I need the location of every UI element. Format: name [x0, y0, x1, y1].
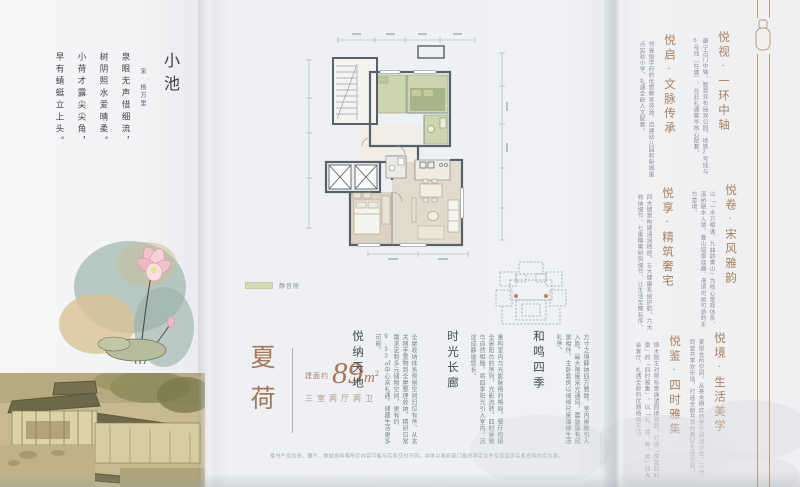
highlight-body: 邻省级学府的优质教育资源，自建幼儿园和新城重点实验小学，礼遇全龄人文配套。 — [636, 41, 654, 179]
highlight-body: 以「一水万相逢，九曲韵青山」为核心景观体系，溪桥融水入境，叠山错景成趣，漫境可居… — [688, 191, 715, 329]
faint-wash-art — [470, 380, 610, 480]
gourd-motif — [751, 18, 775, 54]
lotus-painting — [52, 232, 207, 382]
bottom-edge-shadow — [0, 473, 800, 487]
plan-legend: 静音舱 — [245, 281, 300, 290]
highlight-block: 悦视·一环中轴 康宁古门中轴，智慧双布局双公园，地铁2号线与5号线（在建），在此… — [690, 31, 731, 176]
highlight-body: 四大镜景构建浸润栖居，五大健康系统护航，六大收纳细节，七重精奢研筑细节，让生活至… — [634, 194, 652, 332]
faint-landscape-art — [600, 360, 800, 487]
shaft — [418, 46, 444, 58]
gold-border-line — [769, 0, 770, 487]
area-prefix: 建面约 — [305, 371, 329, 381]
gold-border-line — [757, 0, 758, 487]
floor-plan — [300, 28, 510, 263]
highlight-title: 悦启·文脉传承 — [661, 34, 677, 149]
poem-title: 小池 — [157, 52, 181, 98]
pavilion-painting — [0, 373, 205, 487]
poem-line: 早有蜻蜓立上头。 — [54, 52, 66, 148]
feature-title: 时光长廊 — [444, 330, 460, 400]
feature-title: 悦纳天地 — [349, 330, 365, 400]
highlight-block: 悦启·文脉传承 邻省级学府的优质教育资源，自建幼儿园和新城重点实验小学，礼遇全龄… — [636, 34, 677, 179]
divider-line — [292, 348, 293, 433]
feature-block: 悦纳天地 全屋收纳体系预留空间归位有序，从玄关随手置物到全屋整理收纳，精研日常需… — [349, 330, 417, 446]
highlight-title: 悦视·一环中轴 — [715, 31, 731, 146]
legend-green-swatch — [245, 282, 273, 289]
elevators — [329, 165, 377, 189]
highlight-title: 悦卷·宋风雅韵 — [722, 184, 738, 299]
poem-block: 小池 宋·杨万里 泉眼无声惜细流， 树阴照水爱晴柔。 小荷才露尖尖角， 早有蜻蜓… — [50, 52, 181, 177]
bathroom — [386, 156, 406, 178]
legend-label: 静音舱 — [279, 281, 300, 290]
highlight-body: 康宁古门中轴，智慧双布局双公园，地铁2号线与5号线（在建），在此礼遇繁华核心配套… — [690, 38, 708, 176]
highlight-block: 悦享·精筑奢宅 四大镜景构建浸润栖居，五大健康系统护航，六大收纳细节，七重精奢研… — [634, 187, 675, 332]
highlight-block: 悦卷·宋风雅韵 以「一水万相逢，九曲韵青山」为核心景观体系，溪桥融水入境，叠山错… — [688, 184, 738, 329]
highlight-title: 悦享·精筑奢宅 — [659, 187, 675, 302]
poem-line: 树阴照水爱晴柔。 — [98, 52, 110, 148]
poem-line: 泉眼无声惜细流， — [120, 52, 132, 148]
key-plan — [492, 256, 570, 336]
unit-name: 夏荷 — [242, 344, 278, 439]
poem-line: 小荷才露尖尖角， — [76, 52, 88, 148]
kitchen — [415, 160, 450, 180]
feature-body: 全屋收纳体系预留空间归位有序，从玄关随手置物到全屋整理收纳，精研日常需求定制多元… — [372, 334, 417, 446]
poem-author: 宋·杨万里 — [138, 68, 147, 108]
